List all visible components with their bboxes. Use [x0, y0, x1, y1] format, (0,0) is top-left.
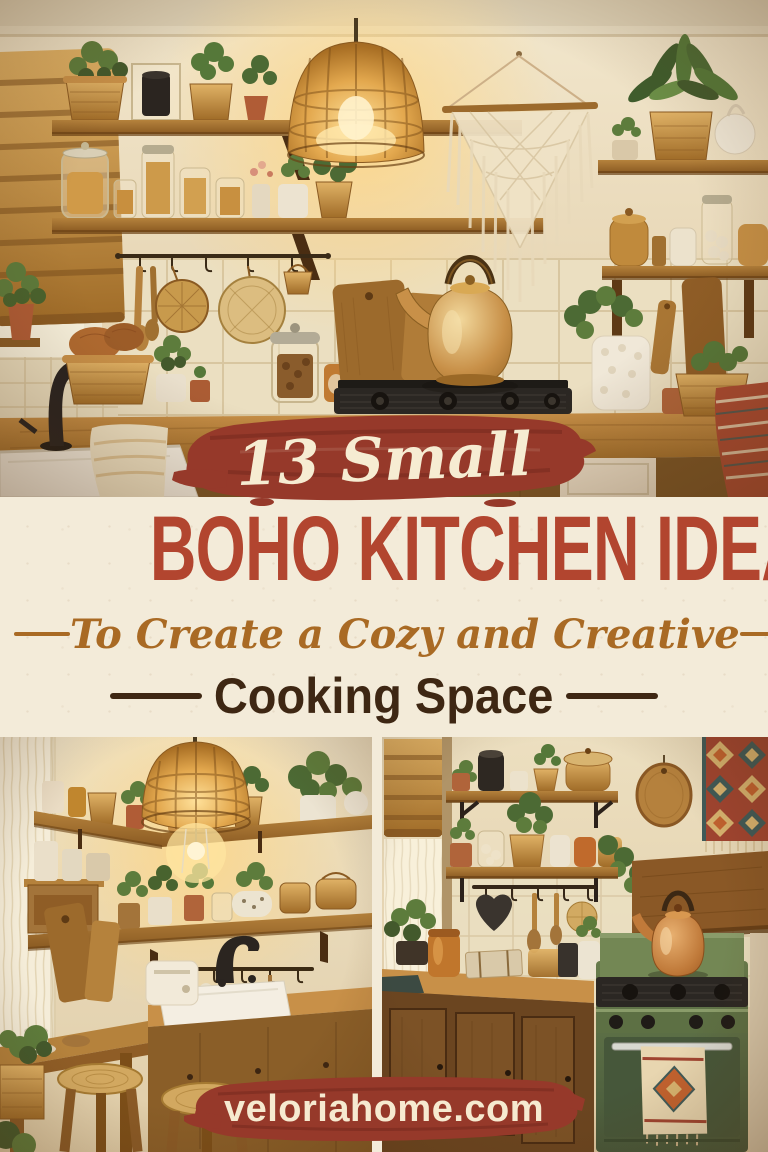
subtitle-dash-left	[14, 632, 70, 636]
pin-subtitle-bold: Cooking Space	[202, 667, 566, 725]
boho-kitchen-pin: 13 Small BOHO KITCHEN IDEAS To Create a …	[0, 0, 768, 1152]
pin-subtitle-script-row: To Create a Cozy and Creative	[14, 604, 754, 664]
subtitle-dash-right	[740, 632, 768, 636]
bold-dash-right	[566, 693, 658, 699]
pin-subtitle-bold-row: Cooking Space	[110, 666, 658, 726]
website-text: veloriahome.com	[184, 1076, 584, 1142]
pin-subtitle-script: To Create a Cozy and Creative	[70, 611, 740, 658]
bold-dash-left	[110, 693, 202, 699]
pin-title: BOHO KITCHEN IDEAS	[0, 501, 768, 598]
